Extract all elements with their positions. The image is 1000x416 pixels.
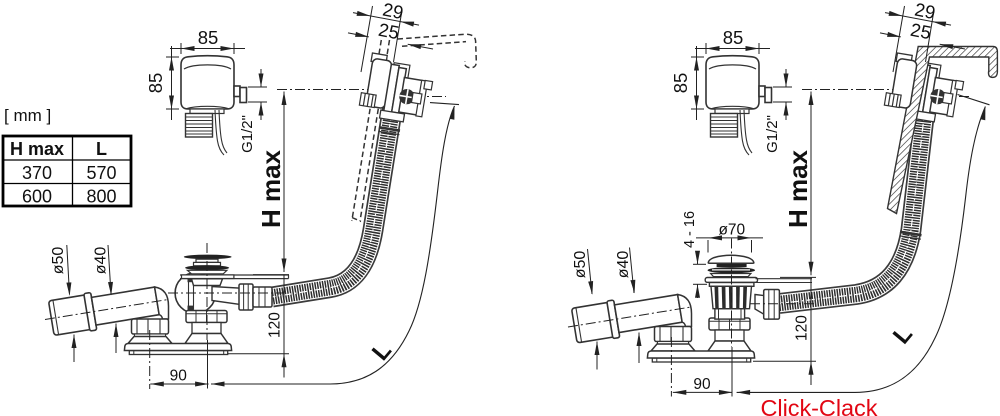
svg-text:ø70: ø70	[718, 221, 745, 238]
svg-text:ø50: ø50	[50, 247, 67, 275]
svg-text:25: 25	[377, 19, 401, 43]
svg-text:370: 370	[22, 163, 52, 183]
svg-text:120: 120	[794, 315, 811, 341]
svg-text:85: 85	[198, 27, 219, 48]
svg-text:ø40: ø40	[93, 247, 110, 275]
svg-text:90: 90	[693, 376, 711, 393]
svg-text:4 - 16: 4 - 16	[682, 211, 698, 248]
svg-text:85: 85	[145, 73, 166, 94]
svg-text:ø40: ø40	[615, 251, 632, 279]
svg-text:800: 800	[86, 187, 116, 207]
svg-text:120: 120	[267, 312, 284, 338]
svg-text:ø50: ø50	[572, 251, 589, 279]
svg-text:90: 90	[170, 368, 188, 385]
svg-text:L: L	[96, 139, 107, 159]
svg-text:Click-Clack: Click-Clack	[761, 395, 878, 416]
svg-text:G1/2": G1/2"	[239, 115, 256, 153]
svg-text:H max: H max	[783, 149, 813, 228]
svg-text:600: 600	[22, 187, 52, 207]
svg-text:[ mm ]: [ mm ]	[4, 106, 51, 125]
svg-text:H max: H max	[10, 139, 64, 159]
svg-text:H max: H max	[256, 149, 286, 228]
svg-text:570: 570	[86, 163, 116, 183]
